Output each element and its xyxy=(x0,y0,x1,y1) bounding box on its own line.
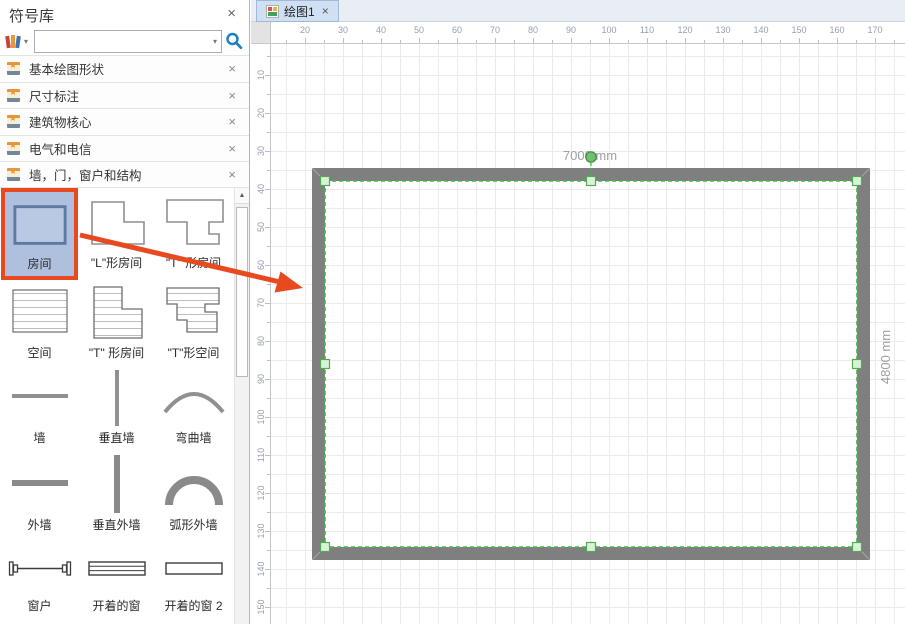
ruler-number: 50 xyxy=(256,222,266,232)
library-scrollbar[interactable]: ▲ xyxy=(234,188,249,624)
ruler-tick xyxy=(305,38,306,43)
shape-label: 开着的窗 xyxy=(92,597,140,614)
ruler-number: 20 xyxy=(256,108,266,118)
section-close-icon[interactable]: × xyxy=(228,88,236,103)
ruler-tick xyxy=(324,40,325,43)
shape-label: 外墙 xyxy=(27,516,51,533)
resize-handle-bottom-right[interactable] xyxy=(853,543,862,552)
stencil-icon xyxy=(7,62,20,75)
ruler-number: 120 xyxy=(256,485,266,500)
ruler-tick xyxy=(628,40,629,43)
tab-label: 绘图1 xyxy=(284,3,315,20)
ruler-number: 130 xyxy=(256,523,266,538)
t-room-hatched-icon xyxy=(81,283,153,343)
ruler-tick xyxy=(723,38,724,43)
t-space-icon xyxy=(158,283,230,343)
ruler-tick xyxy=(286,40,287,43)
ruler-tick xyxy=(818,40,819,43)
document-tabbar: 绘图1 × xyxy=(251,0,905,22)
drawing-canvas[interactable]: 7000 mm 4800 mm xyxy=(271,44,905,624)
shape-item-t-room[interactable]: "T" 形房间 xyxy=(155,188,232,280)
ruler-number: 160 xyxy=(829,25,844,35)
shape-label: 房间 xyxy=(27,255,51,272)
ruler-tick xyxy=(267,322,270,323)
ruler-tick xyxy=(761,38,762,43)
ruler-number: 90 xyxy=(256,374,266,384)
section-close-icon[interactable]: × xyxy=(228,114,236,129)
vertical-wall-icon xyxy=(81,368,153,428)
ruler-tick xyxy=(552,40,553,43)
ruler-tick xyxy=(267,474,270,475)
resize-handle-top-middle[interactable] xyxy=(587,177,596,186)
panel-close-icon[interactable]: × xyxy=(227,5,236,22)
curved-wall-icon xyxy=(158,368,230,428)
vertical-ruler[interactable]: 102030405060708090100110120130140150 xyxy=(251,44,271,624)
shape-label: "T" 形房间 xyxy=(166,254,221,271)
ruler-tick xyxy=(742,40,743,43)
ruler-number: 130 xyxy=(715,25,730,35)
library-section-list: 基本绘图形状 × 尺寸标注 × 建筑物核心 × 电气和电信 × 墙，门，窗户和结… xyxy=(0,55,249,188)
shape-item-vertical-wall[interactable]: 垂直墙 xyxy=(78,365,155,450)
ruler-number: 30 xyxy=(256,146,266,156)
ruler-tick xyxy=(381,38,382,43)
ruler-number: 150 xyxy=(791,25,806,35)
ruler-number: 150 xyxy=(256,599,266,614)
stencil-icon xyxy=(7,89,20,102)
ruler-tick xyxy=(704,40,705,43)
ruler-tick xyxy=(837,38,838,43)
shape-item-vertical-exterior-wall[interactable]: 垂直外墙 xyxy=(78,450,155,537)
shape-item-l-room[interactable]: "L"形房间 xyxy=(78,188,155,280)
ruler-number: 80 xyxy=(256,336,266,346)
shape-label: 空间 xyxy=(27,344,51,361)
shape-label: 墙 xyxy=(33,429,45,446)
shape-grid: 房间 "L"形房间 "T" 形房间 空间 xyxy=(1,188,234,624)
section-label: 基本绘图形状 xyxy=(29,59,104,78)
symbol-library-panel: 符号库 × ▾ ▾ xyxy=(0,0,250,624)
ruler-tick xyxy=(419,38,420,43)
shape-item-exterior-wall[interactable]: 外墙 xyxy=(1,450,78,537)
ruler-number: 100 xyxy=(601,25,616,35)
library-search-row: ▾ ▾ xyxy=(0,29,249,55)
shape-item-t-room-2[interactable]: "T" 形房间 xyxy=(78,280,155,365)
t-room-icon xyxy=(158,191,230,253)
shape-label: 垂直外墙 xyxy=(92,516,140,533)
resize-handle-middle-left[interactable] xyxy=(321,360,330,369)
ruler-number: 100 xyxy=(256,409,266,424)
stencil-icon xyxy=(7,142,20,155)
ruler-tick xyxy=(267,170,270,171)
section-close-icon[interactable]: × xyxy=(228,61,236,76)
section-walls-doors-windows[interactable]: 墙，门，窗户和结构 × xyxy=(0,161,249,188)
ruler-tick xyxy=(457,38,458,43)
shape-label: "T"形空间 xyxy=(168,344,220,361)
ruler-tick xyxy=(875,38,876,43)
resize-handle-middle-right[interactable] xyxy=(853,360,862,369)
ruler-tick xyxy=(647,38,648,43)
combobox-chevron-down-icon[interactable]: ▾ xyxy=(213,37,217,46)
ruler-number: 40 xyxy=(376,25,386,35)
ruler-tick xyxy=(267,588,270,589)
section-building-core[interactable]: 建筑物核心 × xyxy=(0,108,249,135)
ruler-tick xyxy=(609,38,610,43)
ruler-tick xyxy=(267,56,270,57)
chevron-down-icon: ▾ xyxy=(24,37,28,46)
ruler-number: 140 xyxy=(256,561,266,576)
ruler-number: 170 xyxy=(867,25,882,35)
ruler-tick xyxy=(267,284,270,285)
ruler-corner xyxy=(251,22,271,44)
l-room-icon xyxy=(81,191,153,253)
room-shape[interactable]: 7000 mm 4800 mm xyxy=(271,44,905,624)
scrollbar-thumb[interactable] xyxy=(236,207,248,377)
section-close-icon[interactable]: × xyxy=(228,167,236,182)
ruler-tick xyxy=(267,208,270,209)
vertical-exterior-wall-icon xyxy=(81,453,153,515)
panel-header: 符号库 × xyxy=(0,0,249,28)
resize-handle-top-right[interactable] xyxy=(853,177,862,186)
shape-label: "L"形房间 xyxy=(91,254,142,271)
ruler-tick xyxy=(267,398,270,399)
ruler-tick xyxy=(571,38,572,43)
resize-handles xyxy=(321,177,862,552)
exterior-wall-icon xyxy=(4,453,76,515)
open-window-icon xyxy=(81,540,153,596)
ruler-number: 20 xyxy=(300,25,310,35)
ruler-number: 30 xyxy=(338,25,348,35)
shape-item-wall[interactable]: 墙 xyxy=(1,365,78,450)
shape-item-curved-wall[interactable]: 弯曲墙 xyxy=(155,365,232,450)
section-label: 墙，门，窗户和结构 xyxy=(29,165,142,184)
ruler-tick xyxy=(495,38,496,43)
section-label: 电气和电信 xyxy=(29,139,92,158)
drawing-pane: 绘图1 × 2030405060708090100110120130140150… xyxy=(251,0,905,624)
search-icon xyxy=(224,31,244,51)
window-icon xyxy=(4,540,76,596)
ruler-number: 110 xyxy=(640,25,654,35)
search-input[interactable] xyxy=(37,32,205,51)
section-basic-drawing-shapes[interactable]: 基本绘图形状 × xyxy=(0,55,249,82)
height-dimension-label: 4800 mm xyxy=(878,330,893,384)
ruler-tick xyxy=(666,40,667,43)
ruler-number: 70 xyxy=(490,25,500,35)
stencil-icon xyxy=(7,168,20,181)
wall-miter-lines xyxy=(312,168,870,560)
ruler-tick xyxy=(267,436,270,437)
shape-label: "T" 形房间 xyxy=(89,344,144,361)
library-menu-button[interactable]: ▾ xyxy=(5,32,33,51)
ruler-number: 90 xyxy=(566,25,576,35)
ruler-tick xyxy=(856,40,857,43)
ruler-number: 140 xyxy=(753,25,768,35)
ruler-tick xyxy=(267,360,270,361)
rotation-handle[interactable] xyxy=(586,152,596,162)
shape-label: 开着的窗 2 xyxy=(164,597,222,614)
ruler-number: 110 xyxy=(256,448,266,462)
wall-icon xyxy=(4,368,76,428)
ruler-tick xyxy=(267,246,270,247)
room-icon xyxy=(5,198,75,254)
tab-close-icon[interactable]: × xyxy=(322,4,329,18)
ruler-tick xyxy=(533,38,534,43)
ruler-tick xyxy=(267,512,270,513)
ruler-tick xyxy=(267,94,270,95)
library-books-icon xyxy=(5,33,22,50)
ruler-tick xyxy=(343,38,344,43)
section-electrical-telecom[interactable]: 电气和电信 × xyxy=(0,135,249,162)
shape-item-room[interactable]: 房间 xyxy=(1,188,78,280)
ruler-tick xyxy=(894,40,895,43)
ruler-tick xyxy=(438,40,439,43)
arc-exterior-wall-icon xyxy=(158,453,230,515)
ruler-tick xyxy=(590,40,591,43)
drawing-file-icon xyxy=(266,5,279,18)
resize-handle-bottom-left[interactable] xyxy=(321,543,330,552)
shape-item-open-window[interactable]: 开着的窗 xyxy=(78,537,155,624)
open-window-2-icon xyxy=(158,540,230,596)
ruler-number: 80 xyxy=(528,25,538,35)
shape-label: 弧形外墙 xyxy=(169,516,217,533)
section-close-icon[interactable]: × xyxy=(228,141,236,156)
shape-label: 窗户 xyxy=(27,597,51,614)
ruler-tick xyxy=(267,132,270,133)
space-icon xyxy=(4,283,76,343)
ruler-tick xyxy=(685,38,686,43)
section-label: 建筑物核心 xyxy=(29,112,92,131)
shape-item-arc-exterior-wall[interactable]: 弧形外墙 xyxy=(155,450,232,537)
horizontal-ruler[interactable]: 2030405060708090100110120130140150160170 xyxy=(271,22,905,44)
ruler-number: 40 xyxy=(256,184,266,194)
shape-label: 垂直墙 xyxy=(98,429,134,446)
shape-item-space[interactable]: 空间 xyxy=(1,280,78,365)
ruler-number: 120 xyxy=(677,25,692,35)
ruler-tick xyxy=(267,550,270,551)
stencil-icon xyxy=(7,115,20,128)
shape-item-t-space[interactable]: "T"形空间 xyxy=(155,280,232,365)
search-button[interactable] xyxy=(224,31,245,52)
shape-item-open-window-2[interactable]: 开着的窗 2 xyxy=(155,537,232,624)
search-combobox: ▾ xyxy=(34,30,222,53)
ruler-number: 60 xyxy=(256,260,266,270)
ruler-tick xyxy=(780,40,781,43)
ruler-number: 50 xyxy=(414,25,424,35)
application-window: 符号库 × ▾ ▾ xyxy=(0,0,905,624)
resize-handle-bottom-middle[interactable] xyxy=(587,543,596,552)
section-dimensioning[interactable]: 尺寸标注 × xyxy=(0,82,249,109)
resize-handle-top-left[interactable] xyxy=(321,177,330,186)
ruler-tick xyxy=(799,38,800,43)
selection-outline xyxy=(325,181,857,547)
section-label: 尺寸标注 xyxy=(29,86,79,105)
ruler-tick xyxy=(362,40,363,43)
ruler-number: 10 xyxy=(256,70,266,80)
tab-drawing1[interactable]: 绘图1 × xyxy=(256,0,339,22)
ruler-tick xyxy=(400,40,401,43)
ruler-tick xyxy=(476,40,477,43)
panel-title: 符号库 xyxy=(9,5,54,26)
ruler-number: 70 xyxy=(256,298,266,308)
shape-item-window[interactable]: 窗户 xyxy=(1,537,78,624)
ruler-tick xyxy=(514,40,515,43)
ruler-number: 60 xyxy=(452,25,462,35)
scroll-up-arrow-icon[interactable]: ▲ xyxy=(235,188,249,204)
room-wall[interactable] xyxy=(312,168,870,560)
shape-label: 弯曲墙 xyxy=(175,429,211,446)
